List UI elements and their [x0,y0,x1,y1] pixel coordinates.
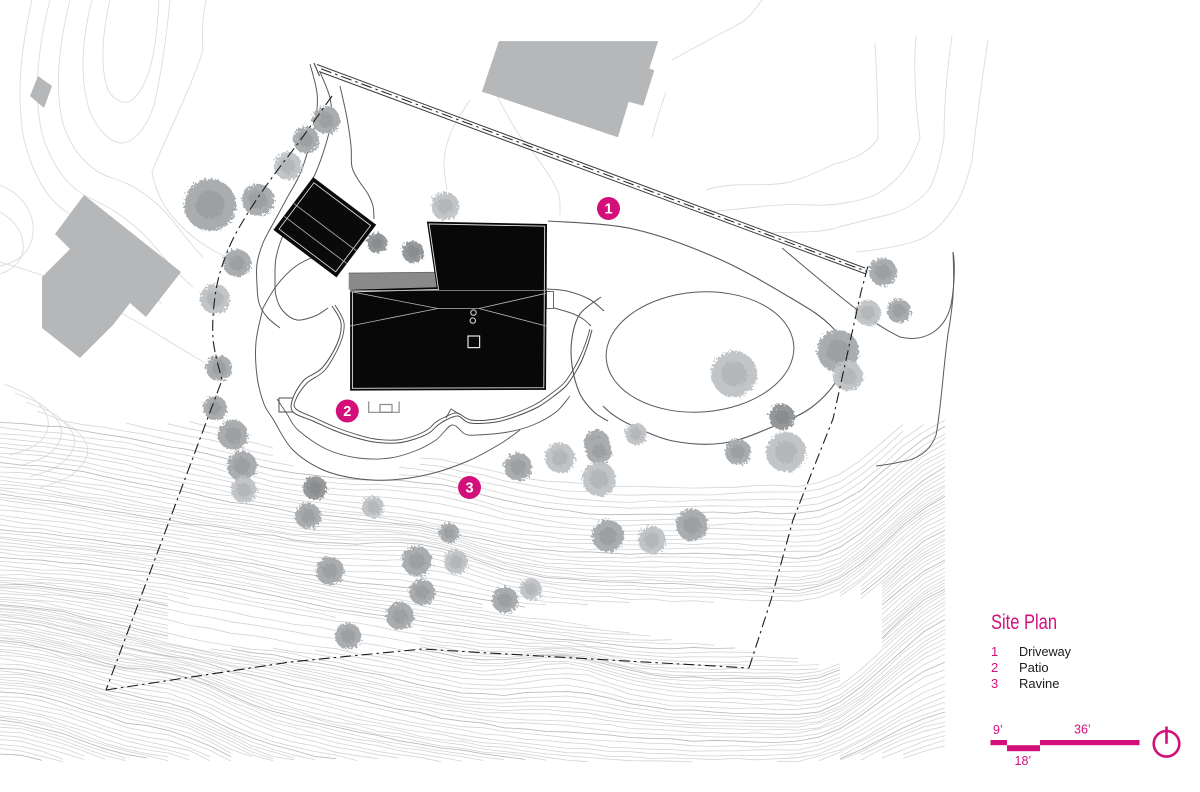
svg-text:Driveway: Driveway [1019,644,1071,659]
svg-text:9’: 9’ [993,723,1003,737]
svg-text:Ravine: Ravine [1019,676,1059,691]
svg-text:1: 1 [604,202,612,218]
svg-text:18’: 18’ [1015,754,1032,768]
svg-text:3: 3 [991,676,998,691]
svg-text:1: 1 [991,644,998,659]
svg-text:36’: 36’ [1074,723,1091,737]
svg-text:3: 3 [465,481,473,497]
svg-text:2: 2 [343,404,351,420]
svg-text:Patio: Patio [1019,660,1049,675]
svg-text:Site Plan: Site Plan [991,610,1057,634]
svg-text:2: 2 [991,660,998,675]
